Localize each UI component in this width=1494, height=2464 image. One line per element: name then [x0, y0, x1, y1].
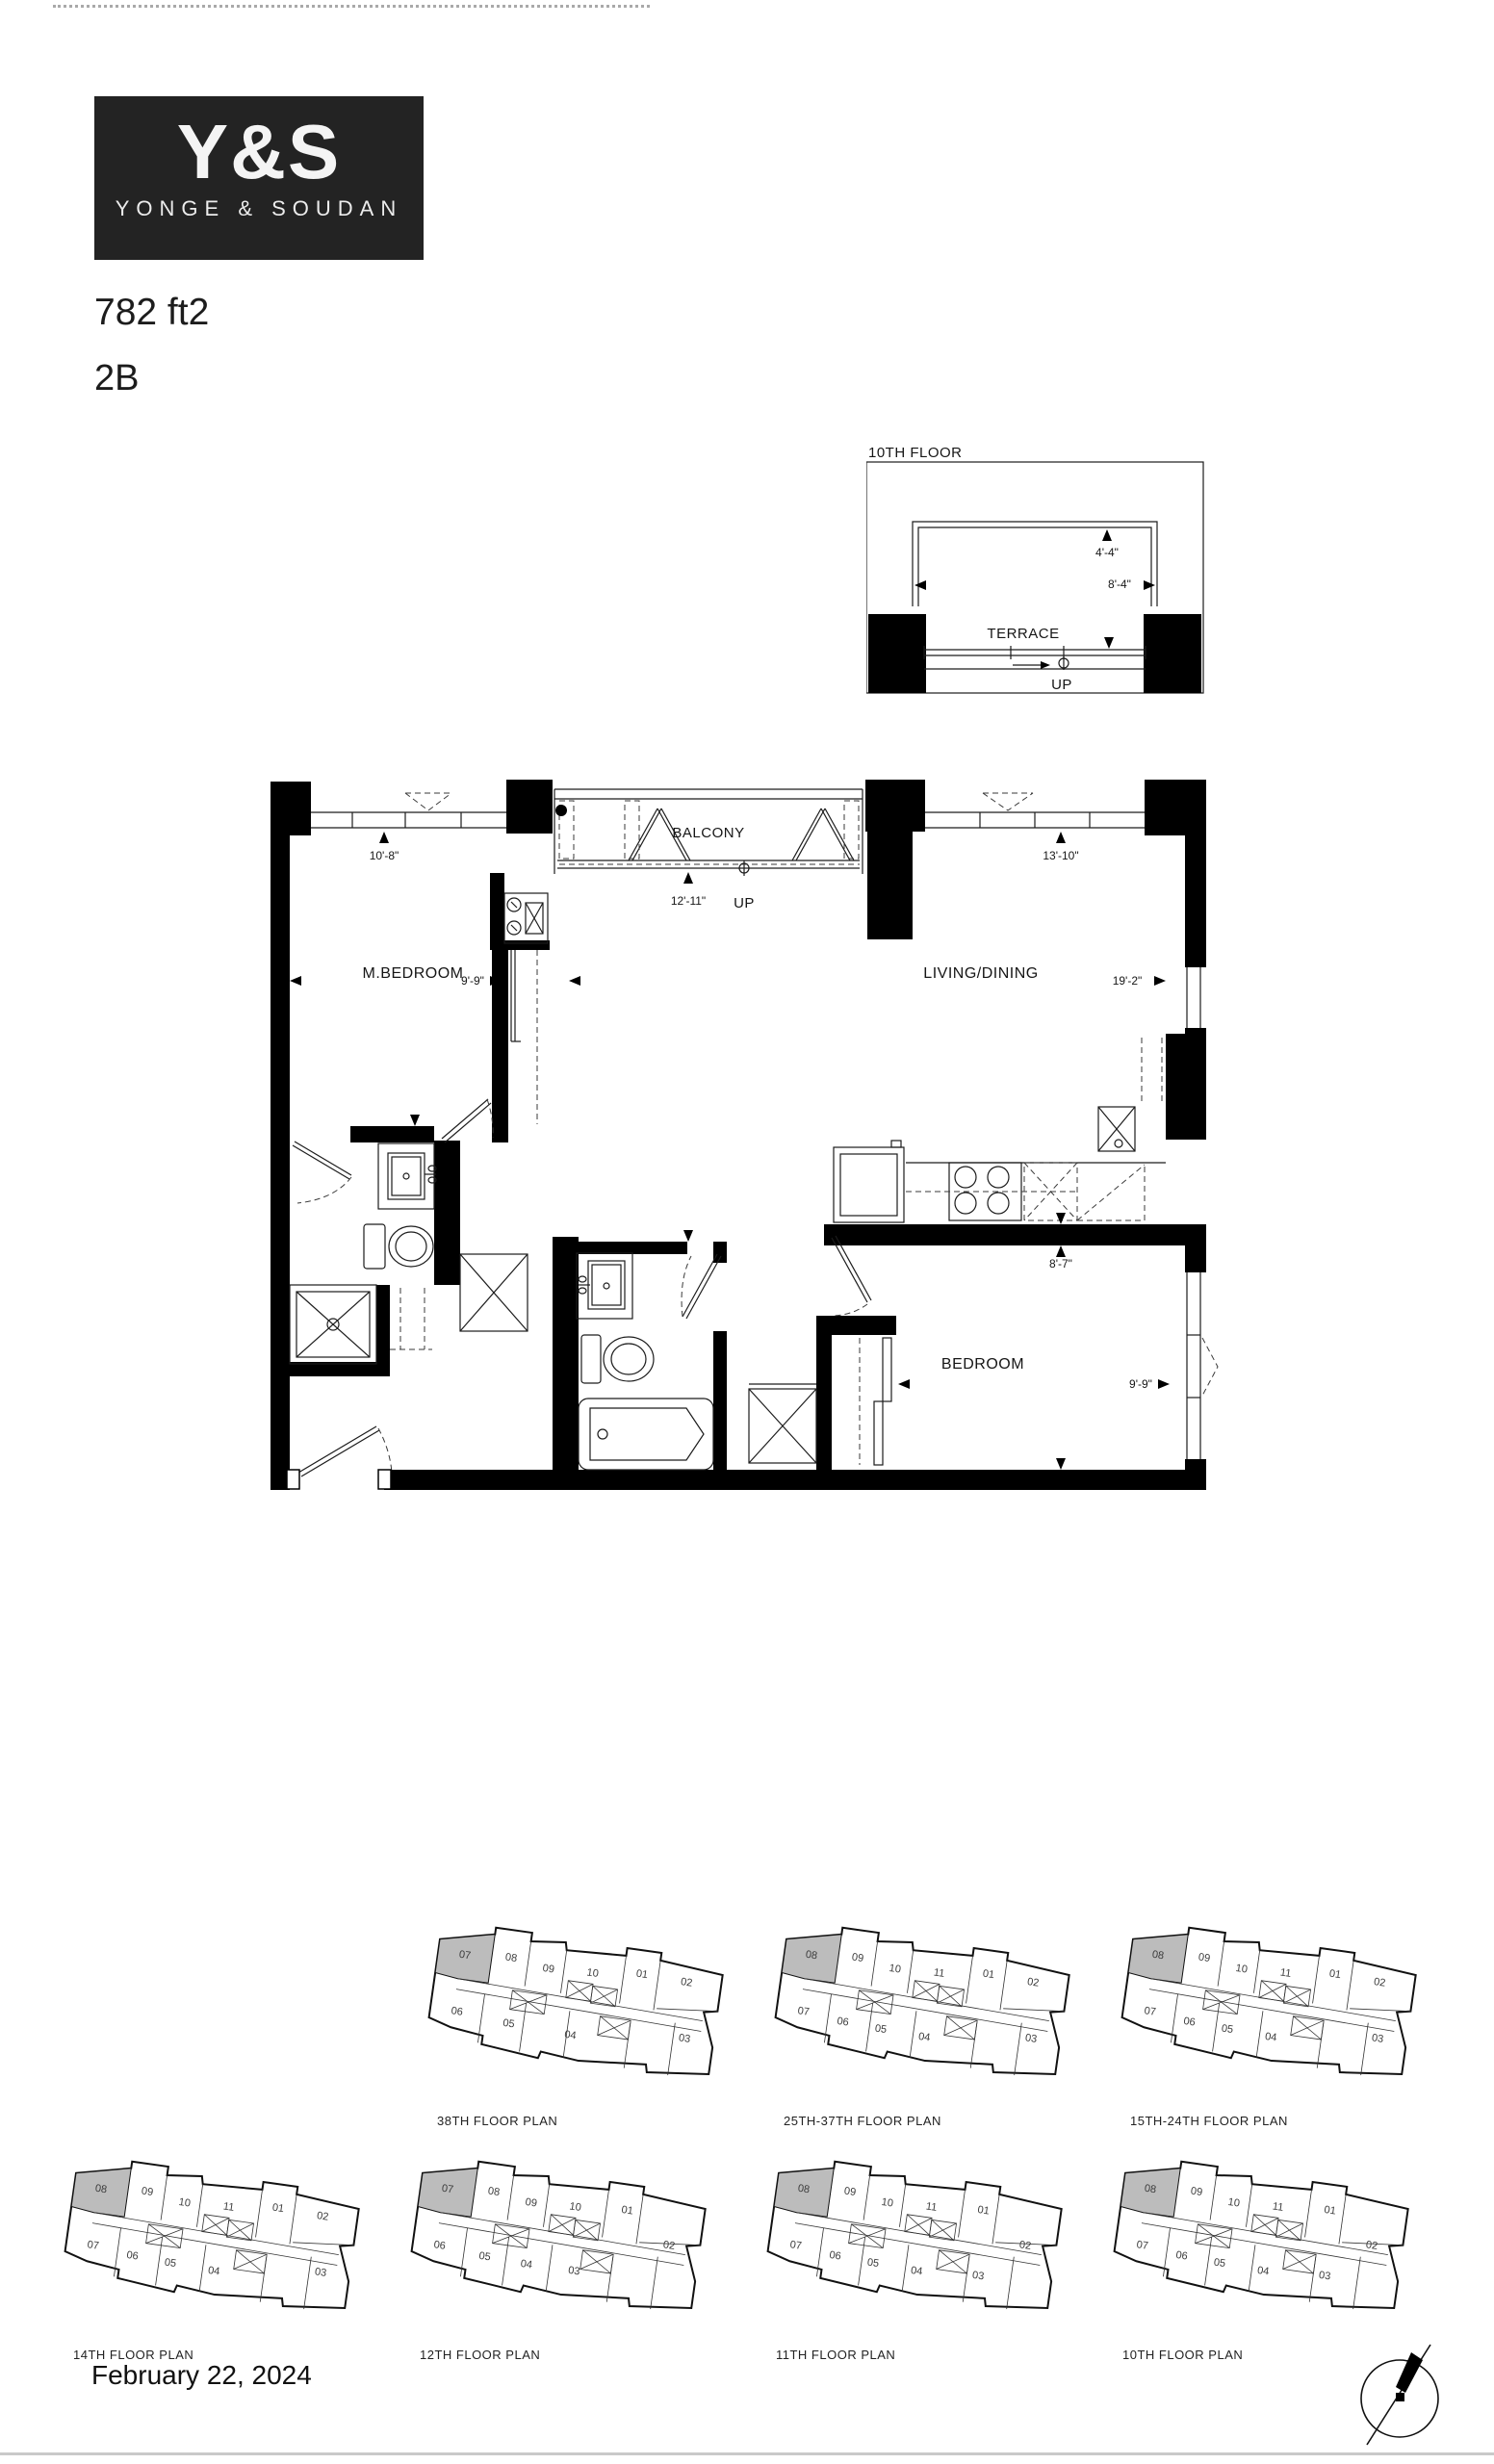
keyplan-unit-label: 08 [1151, 1949, 1165, 1963]
terrace-dim-width: 8'-4" [1108, 577, 1131, 591]
kitchen [834, 1038, 1166, 1222]
dim-balcony-width: 12'-11" [671, 894, 706, 908]
keyplan-unit-label: 04 [207, 2265, 220, 2278]
corridor-closet [460, 1254, 528, 1331]
terrace-door [924, 646, 1146, 670]
logo: Y&S YONGE & SOUDAN [94, 96, 424, 260]
dim-living-width: 13'-10" [1043, 849, 1078, 862]
keyplan-unit-label: 03 [1318, 2270, 1331, 2283]
keyplan-unit-label: 07 [441, 2183, 454, 2196]
keyplan-unit-label: 03 [1024, 2032, 1038, 2045]
keyplan-10: 0809101101020706050403 10TH FLOOR PLAN [1109, 2144, 1427, 2362]
laundry-closet [504, 893, 548, 943]
label-balcony-up: UP [734, 895, 755, 911]
keyplan-unit-label: 05 [866, 2257, 880, 2271]
keyplan-unit-label: 03 [567, 2265, 580, 2278]
keyplan-unit-label: 11 [1272, 2200, 1284, 2213]
keyplan-25-37: 0809101101020706050403 25TH-37TH FLOOR P… [770, 1911, 1088, 2128]
keyplan-unit-label: 05 [478, 2250, 492, 2264]
logo-initials: Y&S [94, 114, 424, 191]
dim-arrows [290, 832, 1170, 1470]
keyplan-unit-label: 03 [678, 2032, 691, 2045]
keyplan-title: 38TH FLOOR PLAN [424, 2114, 741, 2128]
page-bottom-edge [0, 2452, 1494, 2455]
keyplan-unit-label: 05 [1221, 2023, 1234, 2037]
walls [270, 780, 1206, 1490]
keyplan-unit-label: 09 [542, 1963, 555, 1976]
keyplan-unit-label: 05 [1213, 2257, 1226, 2271]
keyplan-unit-label: 02 [680, 1976, 693, 1989]
room-label-living: LIVING/DINING [923, 965, 1038, 982]
keyplan-unit-label: 07 [87, 2239, 100, 2252]
keyplan-title: 25TH-37TH FLOOR PLAN [770, 2114, 1088, 2128]
hall-door [442, 1099, 493, 1142]
page-top-edge [53, 5, 650, 8]
keyplan-unit-label: 07 [458, 1949, 472, 1963]
keyplan-unit-label: 02 [1373, 1976, 1386, 1989]
keyplan-title: 12TH FLOOR PLAN [406, 2348, 724, 2362]
keyplan-unit-label: 03 [314, 2266, 327, 2279]
keyplan-unit-label: 03 [1371, 2032, 1384, 2045]
keyplan-unit-label: 05 [502, 2017, 516, 2031]
bedroom-door [832, 1236, 871, 1316]
keyplan-unit-label: 06 [829, 2249, 842, 2263]
keyplan-unit-label: 02 [1365, 2239, 1378, 2252]
keyplan-unit-label: 01 [635, 1968, 649, 1982]
keyplan-14: 0809101101020706050403 14TH FLOOR PLAN [60, 2144, 377, 2362]
unit-area: 782 ft2 [94, 292, 209, 334]
keyplan-unit-label: 01 [977, 2204, 991, 2218]
room-label-balcony: BALCONY [672, 825, 744, 841]
keyplan-unit-label: 02 [662, 2239, 676, 2252]
keyplan-12: 07080910010206050403 12TH FLOOR PLAN [406, 2144, 724, 2362]
keyplan-unit-label: 10 [178, 2196, 192, 2210]
room-label-master: M.BEDROOM [363, 965, 464, 982]
keyplan-unit-label: 02 [1018, 2239, 1032, 2252]
entry-door [287, 1426, 392, 1489]
keyplan-unit-label: 10 [1235, 1963, 1249, 1976]
keyplan-unit-label: 11 [222, 2200, 235, 2213]
keyplan-unit-label: 11 [925, 2200, 938, 2213]
keyplan-unit-label: 07 [797, 2005, 811, 2018]
keyplan-unit-label: 08 [805, 1949, 818, 1963]
keyplan-unit-label: 09 [1190, 2185, 1203, 2198]
keyplan-unit-label: 07 [1144, 2005, 1157, 2018]
keyplan-unit-label: 01 [1324, 2204, 1337, 2218]
keyplan-unit-label: 01 [982, 1968, 995, 1982]
keyplan-unit-label: 06 [451, 2005, 464, 2018]
keyplan-11: 0809101101020706050403 11TH FLOOR PLAN [762, 2144, 1080, 2362]
keyplan-unit-label: 10 [889, 1963, 902, 1976]
unit-type: 2B [94, 358, 139, 399]
keyplan-unit-label: 04 [564, 2029, 578, 2042]
keyplan-unit-label: 10 [1227, 2196, 1241, 2210]
keyplan-unit-label: 07 [789, 2239, 803, 2252]
terrace-dim-arrows [914, 529, 1155, 669]
keyplan-unit-label: 04 [910, 2265, 923, 2278]
keyplan-unit-label: 05 [874, 2023, 888, 2037]
keyplan-38: 07080910010206050403 38TH FLOOR PLAN [424, 1911, 741, 2128]
balcony-column-dot [555, 805, 567, 816]
dim-master-width: 10'-8" [370, 849, 399, 862]
keyplan-title: 15TH-24TH FLOOR PLAN [1117, 2114, 1434, 2128]
keyplan-unit-label: 11 [933, 1966, 945, 1979]
keyplan-unit-label: 10 [881, 2196, 894, 2210]
keyplan-unit-label: 09 [141, 2185, 154, 2198]
keyplan-15-24: 0809101101020706050403 15TH-24TH FLOOR P… [1117, 1911, 1434, 2128]
keyplan-unit-label: 06 [1175, 2249, 1189, 2263]
bedroom-hall-closet [749, 1384, 816, 1463]
north-compass-icon [1346, 2337, 1461, 2452]
dim-kitchen-width: 8'-7" [1049, 1257, 1072, 1270]
keyplan-unit-label: 06 [837, 2015, 850, 2029]
keyplan-unit-label: 04 [520, 2258, 533, 2271]
keyplan-unit-label: 10 [569, 2200, 582, 2214]
keyplan-unit-label: 06 [126, 2249, 140, 2263]
keyplan-unit-label: 08 [504, 1951, 518, 1964]
keyplan-unit-label: 04 [1256, 2265, 1270, 2278]
logo-name: YONGE & SOUDAN [94, 196, 424, 221]
bedroom-closet [860, 1338, 891, 1465]
keyplan-unit-label: 10 [586, 1966, 600, 1980]
room-label-bedroom: BEDROOM [941, 1356, 1024, 1373]
keyplan-unit-label: 02 [316, 2210, 329, 2223]
keyplan-unit-label: 08 [797, 2183, 811, 2196]
keyplan-unit-label: 01 [621, 2204, 634, 2218]
keyplan-unit-label: 06 [433, 2239, 447, 2252]
terrace-room-label: TERRACE [987, 626, 1059, 642]
keyplan-unit-label: 02 [1026, 1976, 1040, 1989]
keyplan-unit-label: 11 [1279, 1966, 1292, 1979]
keyplan-unit-label: 08 [487, 2185, 501, 2198]
keyplan-unit-label: 05 [164, 2257, 177, 2271]
dim-living-depth: 19'-2" [1113, 974, 1143, 988]
keyplan-unit-label: 03 [971, 2270, 985, 2283]
master-closet [511, 950, 537, 1124]
keyplan-unit-label: 01 [1328, 1968, 1342, 1982]
keyplan-unit-label: 09 [525, 2196, 538, 2210]
keyplan-unit-label: 09 [1198, 1951, 1211, 1964]
terrace-plan: 10TH FLOOR 4'-4" 8'-4" TERRACE UP [866, 441, 1223, 715]
dim-bedroom-depth: 9'-9" [1129, 1377, 1152, 1391]
plan-date: February 22, 2024 [91, 2360, 312, 2391]
terrace-up-label: UP [1051, 677, 1072, 693]
keyplan-unit-label: 09 [843, 2185, 857, 2198]
keyplan-unit-label: 01 [271, 2202, 285, 2216]
keyplan-title: 11TH FLOOR PLAN [762, 2348, 1080, 2362]
keyplan-unit-label: 08 [1144, 2183, 1157, 2196]
keyplan-unit-label: 04 [917, 2031, 931, 2044]
main-bathroom [577, 1253, 721, 1470]
keyplan-unit-label: 08 [94, 2183, 108, 2196]
keyplan-unit-label: 04 [1264, 2031, 1277, 2044]
keyplan-unit-label: 06 [1183, 2015, 1197, 2029]
keyplan-unit-label: 09 [851, 1951, 864, 1964]
main-floor-plan: M.BEDROOM LIVING/DINING BEDROOM BALCONY … [270, 760, 1224, 1511]
terrace-plan-title: 10TH FLOOR [868, 445, 963, 461]
dim-master-depth: 9'-9" [461, 974, 484, 988]
keyplan-unit-label: 07 [1136, 2239, 1149, 2252]
terrace-dim-depth: 4'-4" [1095, 546, 1119, 559]
ensuite-bathroom [290, 1142, 436, 1364]
